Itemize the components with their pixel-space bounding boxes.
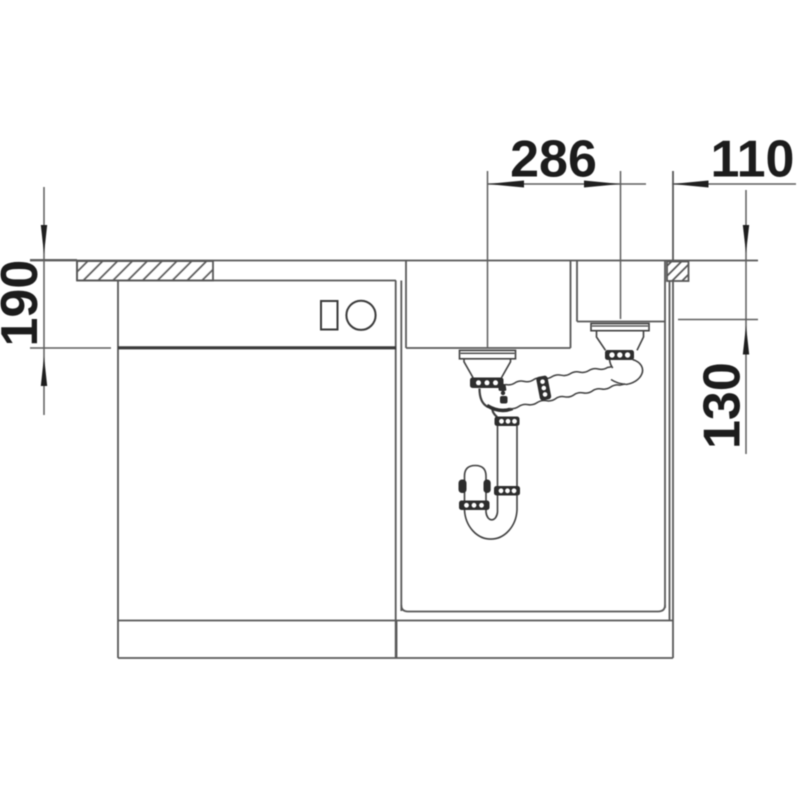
svg-text:130: 130: [694, 362, 752, 449]
svg-text:110: 110: [711, 131, 795, 189]
svg-text:286: 286: [510, 131, 597, 189]
svg-text:190: 190: [0, 260, 49, 347]
